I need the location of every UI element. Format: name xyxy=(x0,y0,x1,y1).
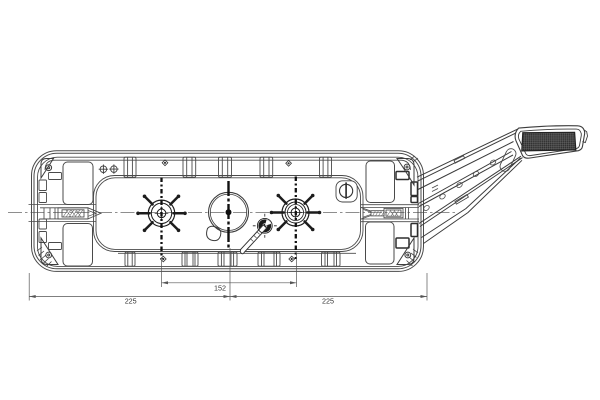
svg-text:225: 225 xyxy=(322,297,334,306)
svg-text:152: 152 xyxy=(214,283,226,292)
svg-text:225: 225 xyxy=(125,297,137,306)
